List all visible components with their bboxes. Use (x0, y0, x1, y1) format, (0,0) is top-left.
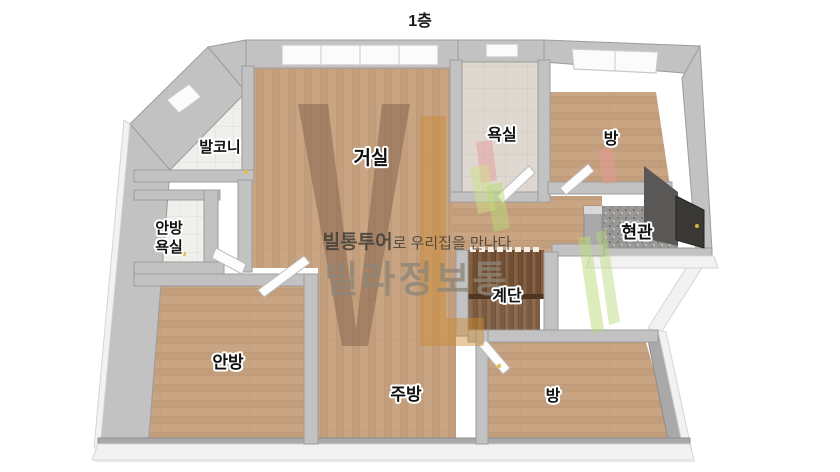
wall-bottomroom-top (468, 330, 658, 342)
page-title: 1층 (408, 12, 432, 30)
wall-mbath-bottom (134, 262, 224, 274)
label-living: 거실 (354, 147, 389, 169)
label-bedroom-bottom: 방 (546, 387, 561, 405)
label-entrance: 현관 (621, 223, 653, 242)
bedroom-bottom-floor (488, 342, 674, 444)
wall-balcony-bottom (134, 170, 254, 182)
label-stairs: 계단 (492, 286, 522, 305)
watermark-brand: 빌라정보통 (324, 259, 509, 300)
wall-living-left (238, 180, 252, 272)
watermark-tagline: 빌통투어로 우리집을 만나다 (323, 231, 512, 253)
wall-balcony-living (242, 66, 254, 180)
label-master-bedroom: 안방 (212, 353, 244, 372)
floorplan-page: 빌통투어로 우리집을 만나다 빌라정보통 발코니 거실 욕실 방 안방 욕실 현… (0, 0, 840, 472)
floorplan-canvas: 빌통투어로 우리집을 만나다 빌라정보통 발코니 거실 욕실 방 안방 욕실 현… (0, 0, 840, 472)
wall-stairs-right (544, 252, 558, 336)
label-bedroom-top: 방 (604, 130, 619, 148)
bedroom-top-window (572, 49, 658, 73)
wall-living-bath (450, 60, 462, 202)
label-master-bathroom-2: 욕실 (155, 239, 183, 256)
watermark-text: 빌통투어로 우리집을 만나다 빌라정보통 (323, 231, 512, 300)
label-master-bathroom-1: 안방 (155, 219, 183, 237)
label-kitchen: 주방 (390, 385, 422, 404)
wall-bath-room (538, 60, 550, 202)
wall-hall-bottom (552, 244, 604, 256)
wall-master-kitchen (304, 274, 318, 444)
label-bathroom: 욕실 (487, 126, 516, 144)
living-windows (282, 45, 438, 65)
label-balcony: 발코니 (199, 139, 240, 156)
bathroom-window (486, 44, 518, 57)
